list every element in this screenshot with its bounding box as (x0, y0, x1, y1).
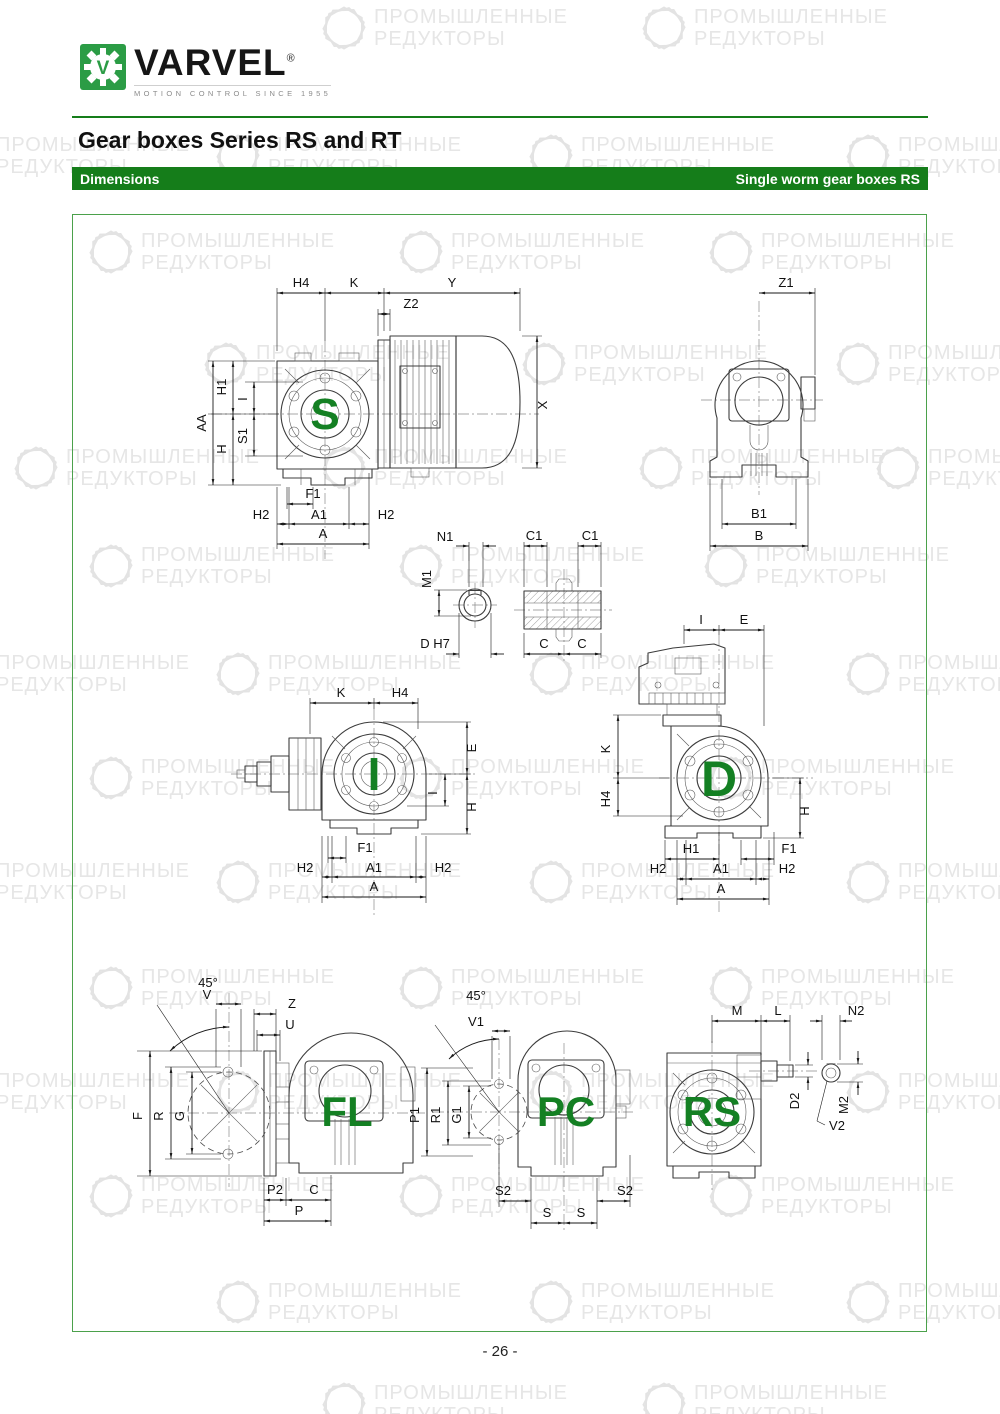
varvel-gear-icon: V (80, 44, 126, 90)
drawing-rear-view: Z1 B1 B (701, 275, 823, 551)
registered-mark: ® (287, 53, 296, 65)
dim-label-s-h: H (214, 444, 229, 453)
dim-label-rs-n2: N2 (848, 1003, 865, 1018)
dim-label-s-a1: A1 (311, 507, 327, 522)
dim-label-pc-sr: S (577, 1205, 586, 1220)
dim-label-d-e: E (740, 612, 749, 627)
dim-label-hollow-c1r: C1 (582, 528, 599, 543)
dim-label-bore-m1: M1 (419, 570, 434, 588)
dim-label-fl-v: V (203, 987, 212, 1002)
drawing-hollow-shaft: C1 C1 C C (514, 528, 612, 663)
dim-label-pc-v1: V1 (468, 1014, 484, 1029)
dim-label-hollow-cl: C (539, 636, 548, 651)
logo-monogram: V (97, 58, 110, 79)
version-letter-s: S (310, 390, 339, 439)
version-letter-pc: PC (537, 1088, 595, 1135)
drawing-fl-version: 45° V Z U (130, 975, 425, 1226)
page-title: Gear boxes Series RS and RT (78, 127, 401, 154)
dim-label-i-a: A (370, 879, 379, 894)
dim-label-fl-z: Z (288, 996, 296, 1011)
version-letter-rs: RS (683, 1088, 741, 1135)
dim-label-d-f1: F1 (781, 841, 796, 856)
dim-label-fl-r: R (151, 1111, 166, 1120)
dim-label-b-z1: Z1 (778, 275, 793, 290)
dim-label-fl-f: F (130, 1112, 145, 1120)
dim-label-pc-g1: G1 (449, 1106, 464, 1123)
catalog-page: ПРОМЫШЛЕННЫЕРЕДУКТОРЫПРОМЫШЛЕННЫЕРЕДУКТО… (0, 0, 1000, 1414)
dim-label-fl-u: U (285, 1017, 294, 1032)
dim-label-d-i: I (699, 612, 703, 627)
dim-label-pc-p1: P1 (407, 1107, 422, 1123)
dim-label-d-h: H (797, 806, 812, 815)
technical-drawings: H4 K Y Z2 X (73, 215, 926, 1331)
dim-label-fl-c: C (309, 1182, 318, 1197)
dim-label-s-h2r: H2 (378, 507, 395, 522)
dim-label-d-a: A (717, 881, 726, 896)
dim-label-d-k: K (598, 744, 613, 753)
drawing-s-version: H4 K Y Z2 X (194, 275, 550, 559)
dim-label-b-b: B (755, 528, 764, 543)
brand-name: VARVEL® (134, 44, 331, 81)
dim-label-bore-n1: N1 (437, 529, 454, 544)
dim-label-i-a1: A1 (366, 860, 382, 875)
dim-label-i-i: I (425, 791, 440, 795)
brand-tagline: MOTION CONTROL SINCE 1955 (134, 85, 331, 98)
dim-label-s-s1: S1 (235, 428, 250, 444)
dim-label-i-h: H (464, 802, 479, 811)
drawing-rs-version: M L N2 D2 (667, 1003, 864, 1190)
dim-label-pc-s2r: S2 (617, 1183, 633, 1198)
dim-label-s-y: Y (448, 275, 457, 290)
section-bar-right: Single worm gear boxes RS (736, 171, 920, 187)
dim-label-s-aa: AA (194, 414, 209, 432)
dim-label-s-a: A (319, 526, 328, 541)
dim-label-i-e: E (464, 743, 479, 752)
dim-label-s-z2: Z2 (403, 296, 418, 311)
dim-label-s-h4: H4 (293, 275, 310, 290)
dim-label-d-h1: H1 (683, 841, 700, 856)
drawing-pc-version: 45° V1 (407, 988, 633, 1231)
green-rule (72, 116, 928, 118)
dim-label-b-b1: B1 (751, 506, 767, 521)
dim-label-s-f1: F1 (305, 486, 320, 501)
dim-label-pc-sl: S (543, 1205, 552, 1220)
dim-label-rs-l: L (774, 1003, 781, 1018)
dim-label-pc-s2l: S2 (495, 1183, 511, 1198)
dim-label-pc-r1: R1 (428, 1107, 443, 1124)
version-letter-d: D (701, 751, 737, 807)
dim-label-fl-p2: P2 (267, 1182, 283, 1197)
drawing-i-version: K H4 E I H F1 (231, 685, 479, 915)
section-bar: Dimensions Single worm gear boxes RS (72, 167, 928, 190)
dim-label-rs-m: M (732, 1003, 743, 1018)
dim-label-pc-angle: 45° (466, 988, 486, 1003)
dim-label-i-f1: F1 (357, 840, 372, 855)
page-number: - 26 - (0, 1343, 1000, 1360)
dim-label-d-h4: H4 (598, 791, 613, 808)
dim-label-rs-m2: M2 (836, 1096, 851, 1114)
dim-label-d-a1: A1 (713, 861, 729, 876)
dim-label-i-h2l: H2 (297, 860, 314, 875)
dim-label-i-k: K (337, 685, 346, 700)
drawing-d-version: I E K H4 H (598, 612, 813, 915)
dim-label-s-h2l: H2 (253, 507, 270, 522)
dim-label-fl-g: G (172, 1111, 187, 1121)
dim-label-rs-d2: D2 (787, 1093, 802, 1110)
dim-label-d-h2r: H2 (779, 861, 796, 876)
version-letter-i: I (368, 748, 381, 800)
dim-label-bore-dh7: D H7 (420, 636, 450, 651)
dim-label-i-h2r: H2 (435, 860, 452, 875)
dim-label-rs-v2: V2 (829, 1118, 845, 1133)
dim-label-d-h2l: H2 (650, 861, 667, 876)
section-bar-left: Dimensions (80, 171, 159, 187)
dim-label-s-h1: H1 (214, 379, 229, 396)
drawing-bore-detail: N1 M1 D H7 (419, 529, 504, 658)
dim-label-fl-p: P (295, 1203, 304, 1218)
dim-label-s-k: K (350, 275, 359, 290)
drawings-frame: H4 K Y Z2 X (72, 214, 927, 1332)
dim-label-i-h4: H4 (392, 685, 409, 700)
dim-label-s-x: X (535, 400, 550, 409)
dim-label-hollow-cr: C (577, 636, 586, 651)
varvel-logo: V VARVEL® MOTION CONTROL SINCE 1955 (80, 44, 331, 98)
version-letter-fl: FL (321, 1088, 372, 1135)
dim-label-s-i: I (235, 397, 250, 401)
dim-label-hollow-c1l: C1 (526, 528, 543, 543)
